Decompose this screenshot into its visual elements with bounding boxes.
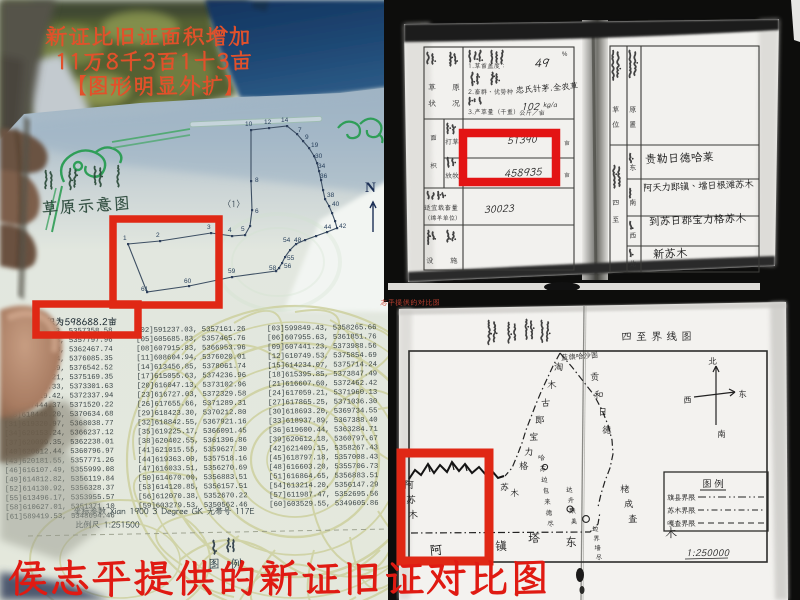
svg-text:48: 48 xyxy=(294,237,302,244)
svg-text:[09]607441.23, 5373988.56: [09]607441.23, 5373988.56 xyxy=(267,343,377,352)
svg-text:[42]621409.15, 5358267.43: [42]621409.15, 5358267.43 xyxy=(268,444,378,453)
svg-text:[36]619600.44, 5363284.71: [36]619600.44, 5363284.71 xyxy=(268,426,378,435)
svg-text:N: N xyxy=(365,180,376,196)
svg-text:1: 1 xyxy=(123,235,127,242)
svg-text:[32]618842.55, 5367921.16: [32]618842.55, 5367921.16 xyxy=(137,418,247,427)
svg-text:[57]611987.47, 5352695.56: [57]611987.47, 5352695.56 xyxy=(269,491,379,500)
svg-text:36: 36 xyxy=(320,173,328,180)
svg-text:[44]619363.00, 5357518.16: [44]619363.00, 5357518.16 xyxy=(138,455,248,464)
svg-text:[21]616607.60, 5372462.42: [21]616607.60, 5372462.42 xyxy=(268,380,378,389)
svg-text:54: 54 xyxy=(283,237,291,244)
svg-text:[02]591237.03, 5357161.26: [02]591237.03, 5357161.26 xyxy=(136,326,246,335)
svg-text:60: 60 xyxy=(184,278,192,285)
svg-text:[18]615395.85, 5373847.49: [18]615395.85, 5373847.49 xyxy=(268,370,378,379)
svg-text:[05]605685.83, 5357465.76: [05]605685.83, 5357465.76 xyxy=(136,335,246,344)
svg-text:[48]616603.20, 5355706.73: [48]616603.20, 5355706.73 xyxy=(269,463,379,472)
svg-text:[60]603529.55, 5349605.86: [60]603529.55, 5349605.86 xyxy=(269,500,379,509)
svg-text:[08]607915.83, 5366953.96: [08]607915.83, 5366953.96 xyxy=(136,344,246,353)
svg-text:[12]610749.53, 5375854.69: [12]610749.53, 5375854.69 xyxy=(267,352,377,361)
svg-text:[24]617059.21, 5371960.13: [24]617059.21, 5371960.13 xyxy=(268,389,378,398)
svg-text:[47]616033.51, 5356270.69: [47]616033.51, 5356270.69 xyxy=(138,464,248,473)
svg-text:[41]621015.55, 5359627.30: [41]621015.55, 5359627.30 xyxy=(137,446,247,455)
svg-text:59: 59 xyxy=(228,268,236,275)
svg-text:[53]614120.85, 5356157.51: [53]614120.85, 5356157.51 xyxy=(138,483,248,492)
svg-text:[23]616727.03, 5372329.58: [23]616727.03, 5372329.58 xyxy=(137,390,247,399)
svg-text:[06]607955.63, 5361851.76: [06]607955.63, 5361851.76 xyxy=(267,333,377,342)
svg-text:12: 12 xyxy=(264,119,272,126)
svg-text:[33]618937.89, 5367388.40: [33]618937.89, 5367388.40 xyxy=(268,417,378,426)
svg-text:8: 8 xyxy=(255,177,259,184)
svg-text:[39]620612.18, 5360797.67: [39]620612.18, 5360797.67 xyxy=(268,435,378,444)
svg-text:[45]618797.18, 5357008.43: [45]618797.18, 5357008.43 xyxy=(269,454,379,463)
svg-text:[50]614670.00, 5356883.51: [50]614670.00, 5356883.51 xyxy=(138,474,248,483)
svg-text:%: % xyxy=(562,52,568,58)
svg-text:[11]608604.94, 5376020.01: [11]608604.94, 5376020.01 xyxy=(136,353,246,362)
svg-text:44: 44 xyxy=(324,224,332,231)
svg-text:3: 3 xyxy=(207,224,211,231)
svg-text:61: 61 xyxy=(141,286,149,293)
svg-text:58: 58 xyxy=(269,265,277,272)
svg-text:42: 42 xyxy=(339,223,347,230)
svg-text:9: 9 xyxy=(305,134,309,141)
svg-text:[17]615055.63, 5374236.96: [17]615055.63, 5374236.96 xyxy=(137,372,247,381)
svg-text:[51]616864.65, 5356883.51: [51]616864.65, 5356883.51 xyxy=(269,472,379,481)
svg-text:30: 30 xyxy=(315,153,323,160)
svg-text:56: 56 xyxy=(284,263,292,270)
svg-text:34: 34 xyxy=(318,163,326,170)
svg-text:14: 14 xyxy=(281,117,289,124)
svg-text:10: 10 xyxy=(245,121,253,128)
svg-text:38: 38 xyxy=(327,192,335,199)
svg-text:55: 55 xyxy=(287,255,295,262)
svg-text:5: 5 xyxy=(241,226,245,233)
svg-text:6: 6 xyxy=(255,208,259,215)
svg-text:[03]599849.43, 5358265.66: [03]599849.43, 5358265.66 xyxy=(267,324,377,333)
svg-text:[56]612070.38, 5352670.22: [56]612070.38, 5352670.22 xyxy=(138,492,248,501)
svg-text:[20]616047.13, 5373102.96: [20]616047.13, 5373102.96 xyxy=(137,381,247,390)
svg-text:[35]619225.17, 5366091.45: [35]619225.17, 5366091.45 xyxy=(137,427,247,436)
svg-text:2: 2 xyxy=(156,232,160,239)
svg-text:[38]620402.55, 5361396.86: [38]620402.55, 5361396.86 xyxy=(137,437,247,446)
svg-text:[27]617865.25, 5371036.30: [27]617865.25, 5371036.30 xyxy=(268,398,378,407)
svg-text:[14]613456.85, 5378061.74: [14]613456.85, 5378061.74 xyxy=(136,363,246,372)
svg-text:40: 40 xyxy=(332,201,340,208)
svg-text:[15]614234.07, 5375714.24: [15]614234.07, 5375714.24 xyxy=(267,361,377,370)
svg-text:19: 19 xyxy=(311,142,319,149)
svg-text:[54]613214.20, 5356147.29: [54]613214.20, 5356147.29 xyxy=(269,481,379,490)
svg-text:[30]618693.20, 5369734.55: [30]618693.20, 5369734.55 xyxy=(268,407,378,416)
svg-text:[29]618423.30, 5370212.80: [29]618423.30, 5370212.80 xyxy=(137,409,247,418)
svg-text:[26]617655.66, 5371289.31: [26]617655.66, 5371289.31 xyxy=(137,400,247,409)
svg-text:4: 4 xyxy=(228,227,232,234)
svg-text:7: 7 xyxy=(298,127,302,134)
